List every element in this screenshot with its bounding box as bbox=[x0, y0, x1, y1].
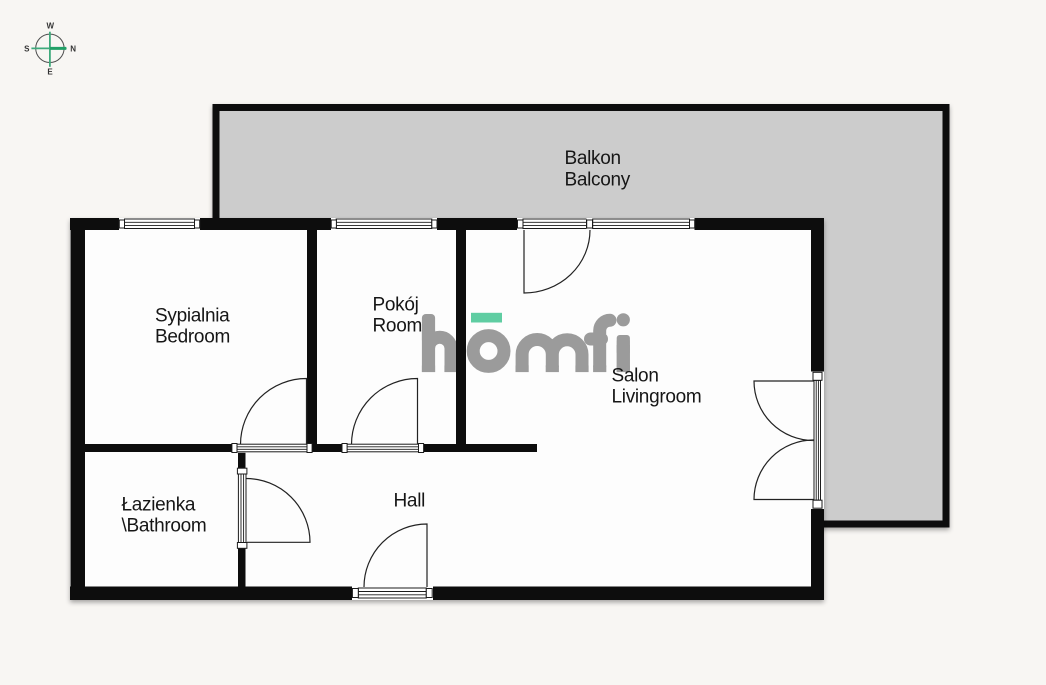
svg-text:N: N bbox=[70, 44, 76, 53]
svg-text:S: S bbox=[24, 44, 30, 53]
svg-text:W: W bbox=[47, 22, 55, 31]
svg-text:Salon: Salon bbox=[612, 366, 659, 387]
svg-text:Livingroom: Livingroom bbox=[612, 387, 702, 408]
svg-text:Bedroom: Bedroom bbox=[155, 326, 230, 347]
svg-text:E: E bbox=[47, 67, 53, 76]
svg-text:Balkon: Balkon bbox=[565, 148, 621, 169]
svg-text:Łazienka: Łazienka bbox=[122, 495, 196, 516]
svg-text:\Bathroom: \Bathroom bbox=[122, 516, 207, 537]
svg-text:Pokój: Pokój bbox=[373, 295, 419, 316]
svg-text:Hall: Hall bbox=[394, 490, 426, 511]
svg-text:Balcony: Balcony bbox=[565, 170, 631, 191]
svg-text:Room: Room bbox=[373, 316, 422, 337]
svg-text:Sypialnia: Sypialnia bbox=[155, 305, 230, 326]
